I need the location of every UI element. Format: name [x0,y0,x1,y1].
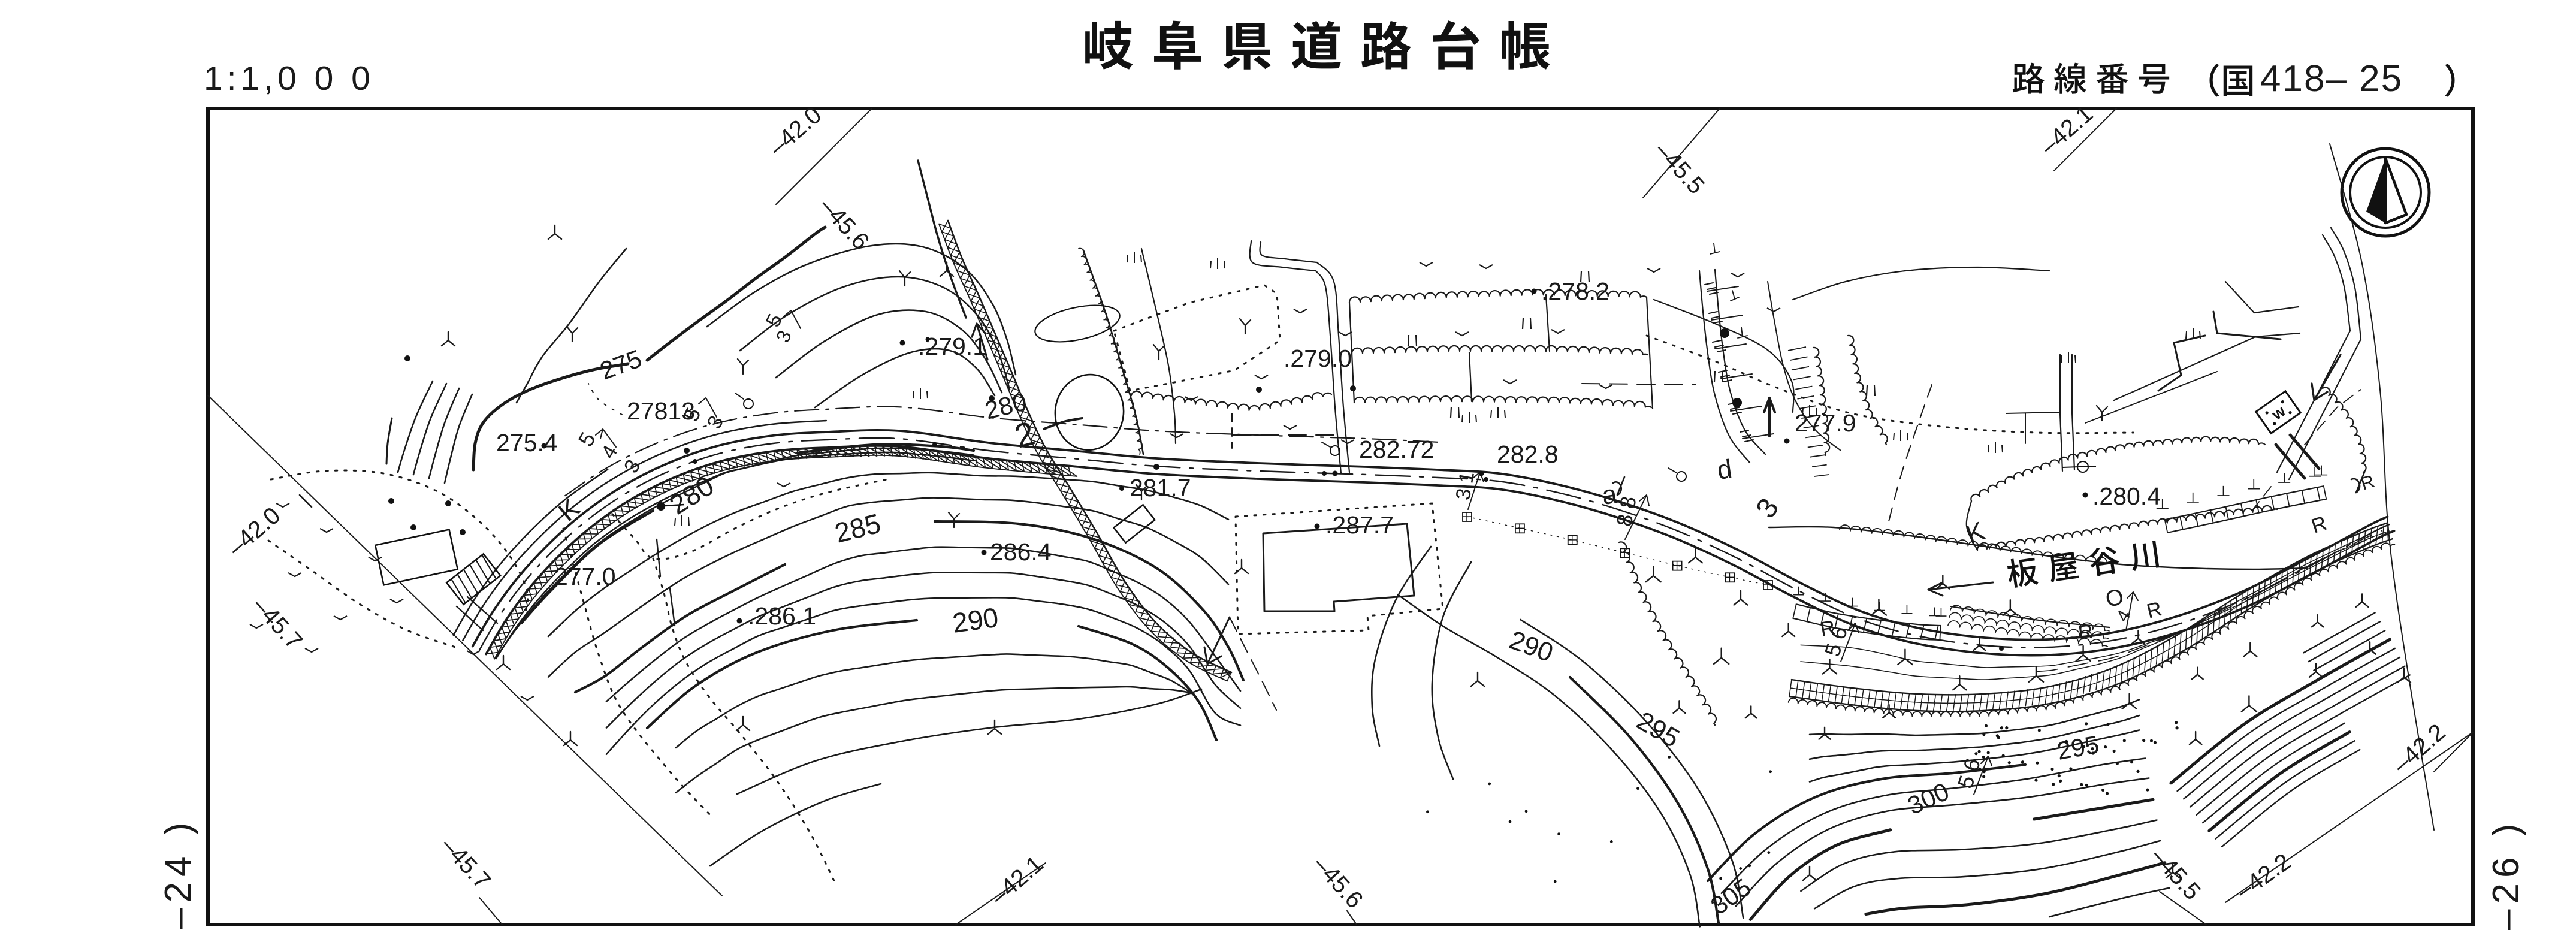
svg-text:282.72: 282.72 [1359,436,1434,463]
svg-text:3 1: 3 1 [1451,470,1479,502]
svg-text:1:1,0 0 0: 1:1,0 0 0 [204,59,375,98]
svg-text:.279.0: .279.0 [1284,345,1352,372]
svg-text:R: R [2077,620,2095,645]
svg-text:–26 ): –26 ) [2486,819,2527,930]
svg-text:.278.2: .278.2 [1541,277,1609,305]
svg-text:–24 ): –24 ) [158,817,199,929]
svg-text:277.0: 277.0 [554,563,616,590]
svg-text:286.4: 286.4 [990,538,1052,566]
svg-text:.280.4: .280.4 [2092,482,2161,510]
svg-text:281.7: 281.7 [1130,474,1191,502]
svg-text:282.8: 282.8 [1497,440,1559,468]
svg-text:.286.1: .286.1 [748,602,816,630]
svg-text:418– 25: 418– 25 [2260,58,2403,99]
svg-text:290: 290 [950,602,1000,639]
svg-text:275.4: 275.4 [496,429,558,457]
svg-text:.279.1: .279.1 [918,333,986,360]
